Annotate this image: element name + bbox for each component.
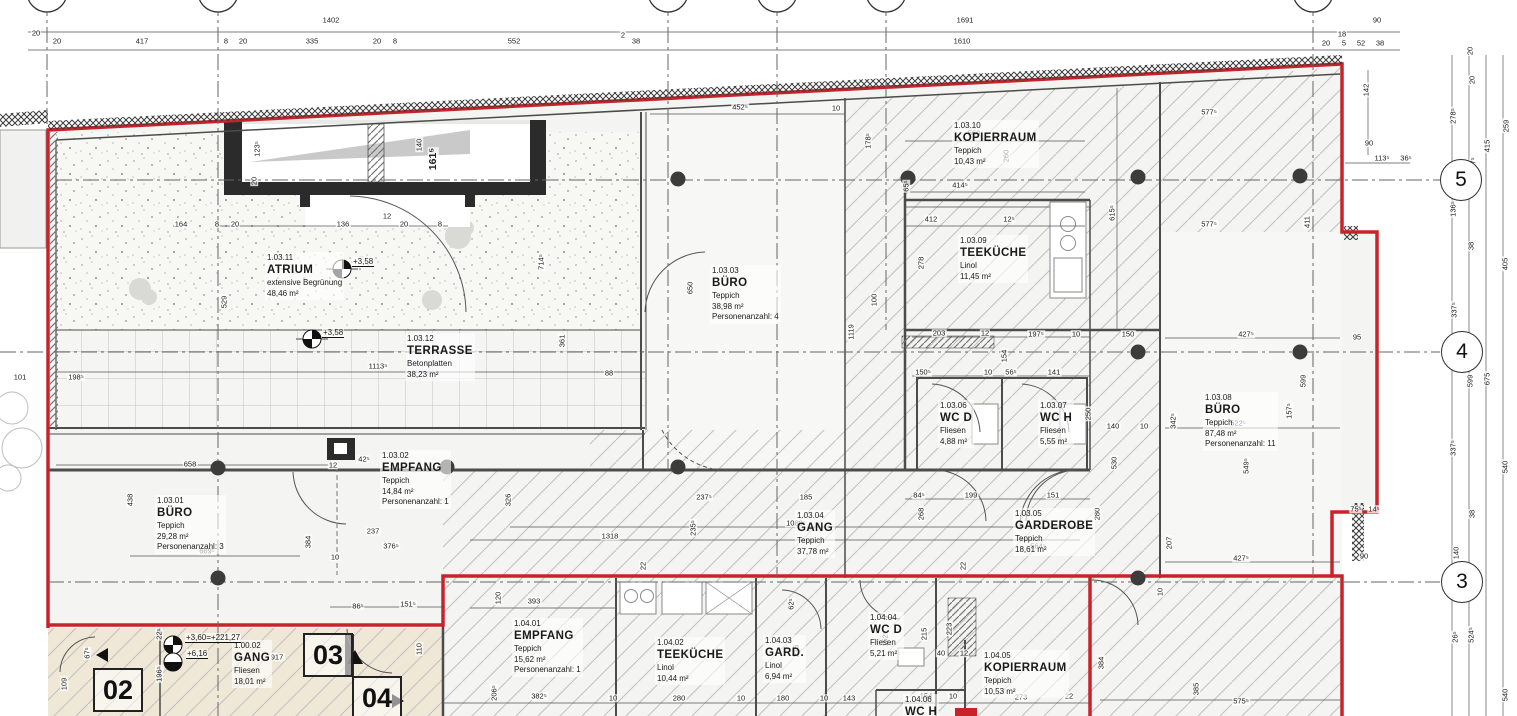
dimension-label: 62⁵ xyxy=(787,597,795,610)
dimension-label: 86⁵ xyxy=(351,602,364,610)
room-info: 37,78 m² xyxy=(797,547,833,557)
room-id: 1.03.08 xyxy=(1205,393,1276,403)
room-id: 1.03.05 xyxy=(1015,509,1093,519)
dimension-label: 529 xyxy=(220,295,228,310)
dimension-label: 577⁵ xyxy=(1200,108,1218,116)
dimension-label: 237 xyxy=(366,527,381,535)
dimension-label: 577⁵ xyxy=(1200,220,1218,228)
room-info: 10,44 m² xyxy=(657,674,723,684)
dimension-label: 1610 xyxy=(953,37,972,45)
dimension-label: 197⁵ xyxy=(1027,330,1045,338)
room-info: 10,53 m² xyxy=(984,687,1067,697)
level-annotation: +3,60=+221,27 xyxy=(185,633,241,643)
dimension-label: 540 xyxy=(1501,460,1509,475)
dimension-label: 178⁵ xyxy=(864,132,872,150)
room-label: 1.03.08BÜROTeppich87,48 m²Personenanzahl… xyxy=(1203,392,1278,451)
dimension-label: 90 xyxy=(1364,139,1374,147)
dimension-label: 411 xyxy=(1303,215,1311,229)
room-info: Personenanzahl: 1 xyxy=(514,665,581,675)
dimension-label: 120 xyxy=(494,591,502,606)
dimension-label: 151 xyxy=(1046,491,1061,499)
door-number: 03 xyxy=(303,633,353,677)
room-name: EMPFANG xyxy=(382,461,449,476)
dimension-label: 250 xyxy=(1084,407,1092,422)
dimension-label: 101 xyxy=(13,373,28,381)
dimension-label: 26⁵ xyxy=(1451,630,1459,643)
floor-plan-sheet: 1402169190202041782033520855223816101820… xyxy=(0,0,1517,716)
dimension-label: 88 xyxy=(604,369,614,377)
dimension-label: 157⁵ xyxy=(1285,402,1293,420)
dimension-label: 100 xyxy=(870,293,878,308)
dimension-label: 38 xyxy=(1468,509,1476,519)
dimension-label: 599 xyxy=(1466,374,1474,389)
grid-bubble: 4 xyxy=(1441,331,1483,373)
dimension-label: 20 xyxy=(31,29,41,37)
dimension-label: 385 xyxy=(1192,682,1200,697)
room-label: 1.03.01BÜROTeppich29,28 m²Personenanzahl… xyxy=(155,495,226,554)
dimension-label: 20 xyxy=(372,37,382,45)
dimension-label: 65⁵ xyxy=(902,179,910,192)
dimension-label: 150 xyxy=(1121,330,1136,338)
dimension-label: 110 xyxy=(415,642,423,656)
room-label: 1.04.01EMPFANGTeppich15,62 m²Personenanz… xyxy=(512,618,583,677)
dimension-label: 123⁵ xyxy=(253,140,261,158)
dimension-label: 113⁵ xyxy=(1373,154,1390,162)
dimension-label: 75⁵ xyxy=(1349,505,1362,513)
dimension-label: 415 xyxy=(1483,139,1491,154)
room-id: 1.04.04 xyxy=(870,613,902,623)
dimension-label: 22⁵ xyxy=(155,627,163,640)
room-label: 1.04.05KOPIERRAUMTeppich10,53 m² xyxy=(982,650,1069,698)
dimension-label: 22 xyxy=(639,561,647,571)
dimension-label: 10 xyxy=(330,553,340,561)
room-info: Teppich xyxy=(1205,418,1276,428)
room-info: Teppich xyxy=(954,146,1037,156)
dimension-label: 268 xyxy=(917,507,925,522)
grid-bubble: 5 xyxy=(1440,159,1482,201)
room-name: EMPFANG xyxy=(514,629,581,644)
room-info: 4,88 m² xyxy=(940,437,972,447)
room-name: KOPIERRAUM xyxy=(954,131,1037,146)
dimension-label: 20 xyxy=(238,37,248,45)
dimension-label: 259 xyxy=(1502,119,1510,134)
room-info: Teppich xyxy=(514,644,581,654)
room-id: 1.03.11 xyxy=(267,253,342,263)
dimension-label: 136⁵ xyxy=(1449,200,1457,218)
dimension-label: 615⁵ xyxy=(1108,204,1116,222)
dimension-label: 223 xyxy=(945,622,953,637)
dimension-label: 90 xyxy=(1359,552,1369,560)
dimension-label: 36⁵ xyxy=(1399,154,1412,162)
level-annotation: +6,16 xyxy=(186,649,208,659)
room-label: 1.03.04GANGTeppich37,78 m² xyxy=(795,510,835,558)
dimension-label: 335 xyxy=(305,37,320,45)
room-label: 1.03.09TEEKÜCHELinol11,45 m² xyxy=(958,235,1028,283)
dimension-label: 452⁵ xyxy=(731,103,749,111)
dimension-label: 650 xyxy=(686,281,694,296)
room-info: 38,98 m² xyxy=(712,302,779,312)
dimension-label: 10 xyxy=(1139,422,1149,430)
dimension-label: 40 xyxy=(936,649,946,657)
room-info: Personenanzahl: 11 xyxy=(1205,439,1276,449)
room-info: 10,43 m² xyxy=(954,157,1037,167)
room-info: 48,46 m² xyxy=(267,289,342,299)
dimension-label: 5 xyxy=(1341,39,1347,47)
room-label: 1.03.11ATRIUMextensive Begrünung48,46 m² xyxy=(265,252,344,300)
dimension-label: 438 xyxy=(126,493,134,508)
dimension-label: 20 xyxy=(1466,46,1474,56)
dimension-label: 140 xyxy=(415,138,423,153)
dimension-label: 8 xyxy=(214,220,220,228)
dimension-label: 12 xyxy=(328,461,338,469)
dimension-label: 530 xyxy=(1110,456,1118,471)
level-annotation: +3,58 xyxy=(352,257,374,267)
dimension-label: 207 xyxy=(1165,536,1173,551)
dimension-label: 10 xyxy=(819,694,829,702)
dimension-label: 20 xyxy=(250,176,258,186)
room-name: BÜRO xyxy=(1205,403,1276,418)
dimension-label: 95 xyxy=(1352,333,1362,341)
dimension-label: 552 xyxy=(507,37,522,45)
room-id: 1.03.04 xyxy=(797,511,833,521)
grid-bubble: 3 xyxy=(1441,561,1483,603)
dimension-label: 658 xyxy=(183,460,198,468)
dimension-label: 164 xyxy=(174,220,189,228)
dimension-label: 714⁵ xyxy=(537,253,545,271)
room-label: 1.03.07WC HFliesen5,55 m² xyxy=(1038,400,1074,448)
room-label: 1.03.03BÜROTeppich38,98 m²Personenanzahl… xyxy=(710,265,781,324)
room-info: Teppich xyxy=(984,676,1067,686)
dimension-label: 12 xyxy=(959,649,969,657)
room-info: Personenanzahl: 4 xyxy=(712,312,779,322)
room-label: 1.04.02TEEKÜCHELinol10,44 m² xyxy=(655,637,725,685)
room-name: WC H xyxy=(905,705,937,716)
room-id: 1.04.03 xyxy=(765,636,804,646)
door-number: 04 xyxy=(352,676,402,716)
room-name: TERRASSE xyxy=(407,344,473,359)
room-name: KOPIERRAUM xyxy=(984,661,1067,676)
room-info: 5,21 m² xyxy=(870,649,902,659)
room-id: 1.03.12 xyxy=(407,334,473,344)
dimension-label: 12⁵ xyxy=(1002,215,1015,223)
dimension-label: 384 xyxy=(304,535,312,550)
dimension-label: 199 xyxy=(964,491,979,499)
room-id: 1.03.03 xyxy=(712,266,779,276)
dimension-label: 1691 xyxy=(956,16,975,24)
dimension-label: 337⁵ xyxy=(1450,301,1458,319)
level-annotation: +3,58 xyxy=(322,328,344,338)
dimension-label: 38 xyxy=(1467,241,1475,251)
dimension-label: 38 xyxy=(1375,39,1385,47)
dimension-label: 235⁵ xyxy=(689,519,697,537)
dimension-label: 151⁵ xyxy=(399,600,417,608)
room-label: 1.04.03GARD.Linol6,94 m² xyxy=(763,635,806,683)
dimension-label: 203 xyxy=(932,329,947,337)
dimension-label: 549⁵ xyxy=(1242,457,1250,475)
room-info: Fliesen xyxy=(870,638,902,648)
dimension-label: 20 xyxy=(399,220,409,228)
room-label: 1.03.10KOPIERRAUMTeppich10,43 m² xyxy=(952,120,1039,168)
dimension-label: 14⁵ xyxy=(1367,505,1380,513)
room-name: TEEKÜCHE xyxy=(657,648,723,663)
dimension-label: 280 xyxy=(672,694,687,702)
dimension-label: 10 xyxy=(608,694,618,702)
room-id: 1.03.07 xyxy=(1040,401,1072,411)
room-label: 1.03.02EMPFANGTeppich14,84 m²Personenanz… xyxy=(380,450,451,509)
room-info: Teppich xyxy=(712,291,779,301)
dimension-label: 361 xyxy=(558,334,566,349)
room-name: WC H xyxy=(1040,411,1072,426)
dimension-label: 22 xyxy=(959,561,967,571)
dimension-label: 198⁵ xyxy=(67,373,85,381)
room-name: GANG xyxy=(234,651,270,666)
room-info: extensive Begrünung xyxy=(267,278,342,288)
room-id: 1.04.02 xyxy=(657,638,723,648)
room-info: Personenanzahl: 1 xyxy=(382,497,449,507)
dimension-label: 575⁵ xyxy=(1232,697,1250,705)
room-name: WC D xyxy=(940,411,972,426)
room-info: Fliesen xyxy=(1040,426,1072,436)
room-label: 1.03.05GARDEROBETeppich18,61 m² xyxy=(1013,508,1095,556)
dimension-label: 417 xyxy=(135,37,150,45)
room-name: BÜRO xyxy=(157,506,224,521)
dimension-label: 12 xyxy=(980,329,990,337)
dimension-label: 414⁵ xyxy=(951,181,969,189)
room-info: Teppich xyxy=(157,521,224,531)
dimension-label: 154 xyxy=(1000,349,1008,364)
dimension-label: 10 xyxy=(983,368,993,376)
room-id: 1.04.01 xyxy=(514,619,581,629)
dimension-label: 20 xyxy=(52,37,62,45)
room-info: Teppich xyxy=(797,536,833,546)
dimension-label: 1113⁵ xyxy=(368,362,389,370)
dimension-label: 109 xyxy=(60,677,68,692)
dimension-label: 90 xyxy=(1372,16,1382,24)
dimension-label: 10 xyxy=(831,104,841,112)
dimension-label: 384 xyxy=(1097,656,1105,671)
dimension-label: 20 xyxy=(1468,75,1476,85)
dimension-label: 196⁵ xyxy=(155,665,163,683)
dimension-label: 278 xyxy=(917,256,925,271)
room-info: Teppich xyxy=(382,476,449,486)
dimension-label: 412 xyxy=(924,215,939,223)
dimension-label: 10 xyxy=(736,694,746,702)
dimension-label: 278⁵ xyxy=(1449,107,1457,125)
room-info: 15,62 m² xyxy=(514,655,581,665)
dimension-label: 10 xyxy=(1071,330,1081,338)
dimension-label: 206⁵ xyxy=(490,684,498,702)
label-layer: 1402169190202041782033520855223816101820… xyxy=(0,0,1517,716)
dimension-label: 38 xyxy=(631,37,641,45)
room-label: 1.04.06WC H xyxy=(903,694,939,716)
room-info: 14,84 m² xyxy=(382,487,449,497)
room-id: 1.04.05 xyxy=(984,651,1067,661)
dimension-label: 42⁵ xyxy=(357,455,370,463)
dimension-label: 150⁵ xyxy=(914,368,932,376)
dimension-label: 427⁵ xyxy=(1232,554,1250,562)
dimension-label: 67⁵ xyxy=(83,646,91,659)
dimension-label: 84⁵ xyxy=(912,491,925,499)
room-info: Linol xyxy=(765,661,804,671)
dimension-label: 180 xyxy=(776,694,791,702)
dimension-label: 540 xyxy=(1501,688,1509,703)
dimension-label: 427⁵ xyxy=(1237,330,1255,338)
room-info: Linol xyxy=(657,663,723,673)
dimension-label: 12 xyxy=(382,212,392,220)
room-info: 87,48 m² xyxy=(1205,429,1276,439)
dimension-label: 10 xyxy=(948,692,958,700)
dimension-label: 405 xyxy=(1501,257,1509,272)
room-name: GARDEROBE xyxy=(1015,519,1093,534)
dimension-label: 20 xyxy=(1321,39,1331,47)
room-name: WC D xyxy=(870,623,902,638)
room-id: 1.04.06 xyxy=(905,695,937,705)
room-info: Linol xyxy=(960,261,1026,271)
room-id: 1.03.06 xyxy=(940,401,972,411)
dimension-label: 140 xyxy=(1106,422,1121,430)
dimension-label: 52 xyxy=(1356,39,1366,47)
room-info: Personenanzahl: 3 xyxy=(157,542,224,552)
dimension-label: 382⁵ xyxy=(530,692,548,700)
room-id: 1.03.10 xyxy=(954,121,1037,131)
dimension-label: 18 xyxy=(1337,30,1347,38)
room-name: GARD. xyxy=(765,646,804,661)
room-label: 1.03.12TERRASSEBetonplatten38,23 m² xyxy=(405,333,475,381)
room-id: 1.03.02 xyxy=(382,451,449,461)
room-info: Fliesen xyxy=(234,666,270,676)
dimension-label: 136 xyxy=(336,220,351,228)
room-name: BÜRO xyxy=(712,276,779,291)
dimension-label: 8 xyxy=(437,220,443,228)
room-info: 18,61 m² xyxy=(1015,545,1093,555)
room-label: 1.04.04WC DFliesen5,21 m² xyxy=(868,612,904,660)
dimension-label: 675 xyxy=(1483,372,1491,387)
dimension-label: 326 xyxy=(504,493,512,508)
room-name: ATRIUM xyxy=(267,263,342,278)
room-label: 1.03.06WC DFliesen4,88 m² xyxy=(938,400,974,448)
door-number: 02 xyxy=(93,668,143,712)
room-name: GANG xyxy=(797,521,833,536)
dimension-label: 141 xyxy=(1047,368,1062,376)
dimension-label: 1318 xyxy=(601,532,620,540)
room-info: 11,45 m² xyxy=(960,272,1026,282)
dimension-label: 161⁵ xyxy=(428,147,439,171)
dimension-label: 10 xyxy=(1156,587,1164,597)
dimension-label: 185 xyxy=(799,493,814,501)
dimension-label: 237⁵ xyxy=(695,493,713,501)
dimension-label: 1402 xyxy=(322,16,341,24)
room-info: 38,23 m² xyxy=(407,370,473,380)
dimension-label: 56⁵ xyxy=(1004,368,1017,376)
dimension-label: 393 xyxy=(527,597,542,605)
dimension-label: 599 xyxy=(1299,374,1307,389)
room-id: 1.03.01 xyxy=(157,496,224,506)
dimension-label: 143 xyxy=(842,694,857,702)
dimension-label: 20 xyxy=(230,220,240,228)
room-id: 1.03.09 xyxy=(960,236,1026,246)
dimension-label: 376⁵ xyxy=(382,542,400,550)
dimension-label: 337⁵ xyxy=(1449,439,1457,457)
dimension-label: 1119 xyxy=(847,323,855,341)
dimension-label: 8 xyxy=(392,37,398,45)
dimension-label: 215 xyxy=(920,627,928,642)
room-info: 5,55 m² xyxy=(1040,437,1072,447)
dimension-label: 8 xyxy=(223,37,229,45)
dimension-label: 140 xyxy=(1452,546,1460,561)
room-info: 29,28 m² xyxy=(157,532,224,542)
room-label: 1.00.02GANGFliesen18,01 m² xyxy=(232,640,272,688)
dimension-label: 342⁵ xyxy=(1169,412,1177,430)
dimension-label: 524⁵ xyxy=(1467,626,1475,644)
room-name: TEEKÜCHE xyxy=(960,246,1026,261)
room-info: 18,01 m² xyxy=(234,677,270,687)
room-info: Fliesen xyxy=(940,426,972,436)
room-info: Betonplatten xyxy=(407,359,473,369)
room-info: Teppich xyxy=(1015,534,1093,544)
dimension-label: 142 xyxy=(1362,83,1370,98)
dimension-label: 2 xyxy=(620,31,626,39)
room-info: 6,94 m² xyxy=(765,672,804,682)
